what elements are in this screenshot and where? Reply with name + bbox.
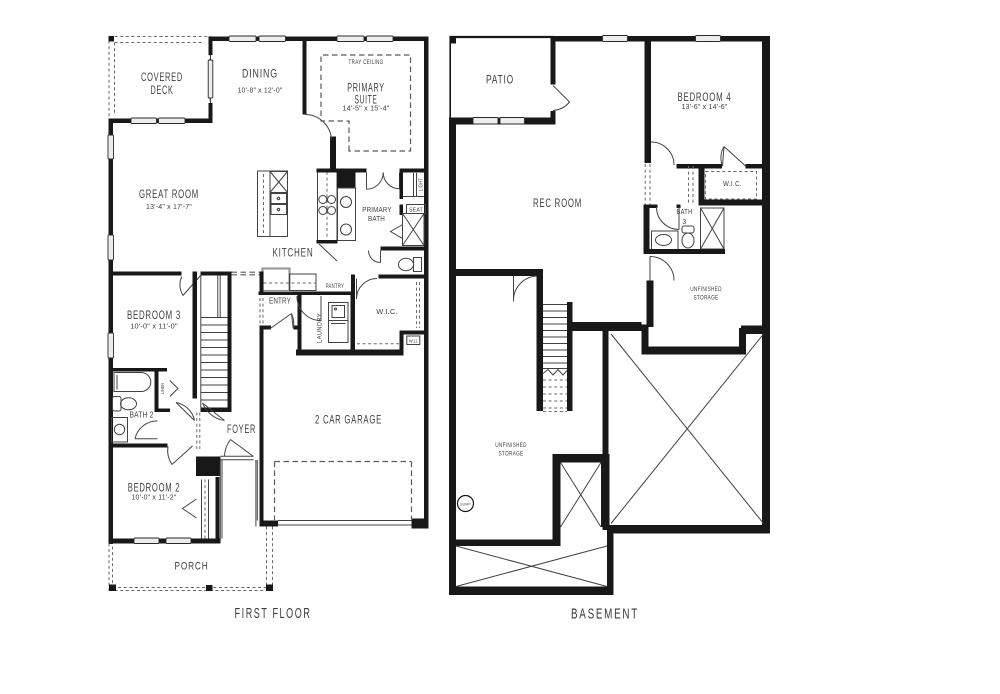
svg-text:SUMP: SUMP (460, 503, 471, 507)
svg-text:DECK: DECK (151, 85, 174, 97)
svg-text:COVERED: COVERED (141, 72, 183, 84)
svg-text:13'-4" x 17'-7": 13'-4" x 17'-7" (146, 202, 192, 211)
svg-text:PANTRY: PANTRY (326, 284, 345, 290)
svg-text:LIGHT: LIGHT (419, 178, 425, 191)
svg-text:BATH 2: BATH 2 (130, 410, 154, 420)
svg-text:10'-8" x 12'-0": 10'-8" x 12'-0" (238, 86, 283, 95)
svg-text:10'-0" x 11'-0": 10'-0" x 11'-0" (130, 321, 178, 330)
svg-text:3: 3 (682, 219, 686, 226)
svg-text:FOYER: FOYER (227, 424, 256, 436)
svg-text:10'-0" x 11'-2": 10'-0" x 11'-2" (132, 492, 177, 501)
svg-text:2 CAR GARAGE: 2 CAR GARAGE (315, 415, 382, 427)
svg-text:REC ROOM: REC ROOM (533, 198, 582, 210)
svg-text:LINEN: LINEN (160, 383, 165, 394)
svg-text:PRIMARY: PRIMARY (362, 205, 392, 214)
svg-text:ENTRY: ENTRY (269, 296, 291, 306)
svg-text:DINING: DINING (242, 69, 278, 81)
svg-text:UNFINISHED: UNFINISHED (690, 286, 722, 293)
svg-text:STORAGE: STORAGE (694, 295, 719, 302)
svg-text:BATH: BATH (368, 214, 385, 223)
svg-text:SEAT: SEAT (409, 207, 423, 213)
svg-text:PRIMARY: PRIMARY (347, 83, 385, 95)
svg-text:13'-6" x 14'-6": 13'-6" x 14'-6" (682, 102, 728, 111)
svg-text:BATH: BATH (677, 209, 693, 216)
svg-text:W11: W11 (409, 338, 418, 343)
svg-text:LAUNDRY: LAUNDRY (317, 313, 324, 343)
svg-text:TRAY CEILING: TRAY CEILING (349, 59, 384, 66)
svg-text:FIRST FLOOR: FIRST FLOOR (235, 606, 312, 622)
svg-text:PORCH: PORCH (175, 561, 209, 573)
svg-text:PATIO: PATIO (486, 74, 514, 86)
svg-text:W.I.C.: W.I.C. (723, 181, 742, 188)
svg-text:14'-5" x 15'-4": 14'-5" x 15'-4" (343, 104, 390, 113)
svg-text:STORAGE: STORAGE (499, 451, 524, 458)
svg-text:UNFINISHED: UNFINISHED (495, 442, 527, 449)
svg-text:W.I.C.: W.I.C. (376, 307, 398, 316)
svg-text:BASEMENT: BASEMENT (571, 607, 639, 623)
svg-text:KITCHEN: KITCHEN (273, 248, 314, 260)
svg-text:GREAT ROOM: GREAT ROOM (139, 189, 199, 201)
svg-text:BEDROOM 3: BEDROOM 3 (127, 310, 181, 322)
